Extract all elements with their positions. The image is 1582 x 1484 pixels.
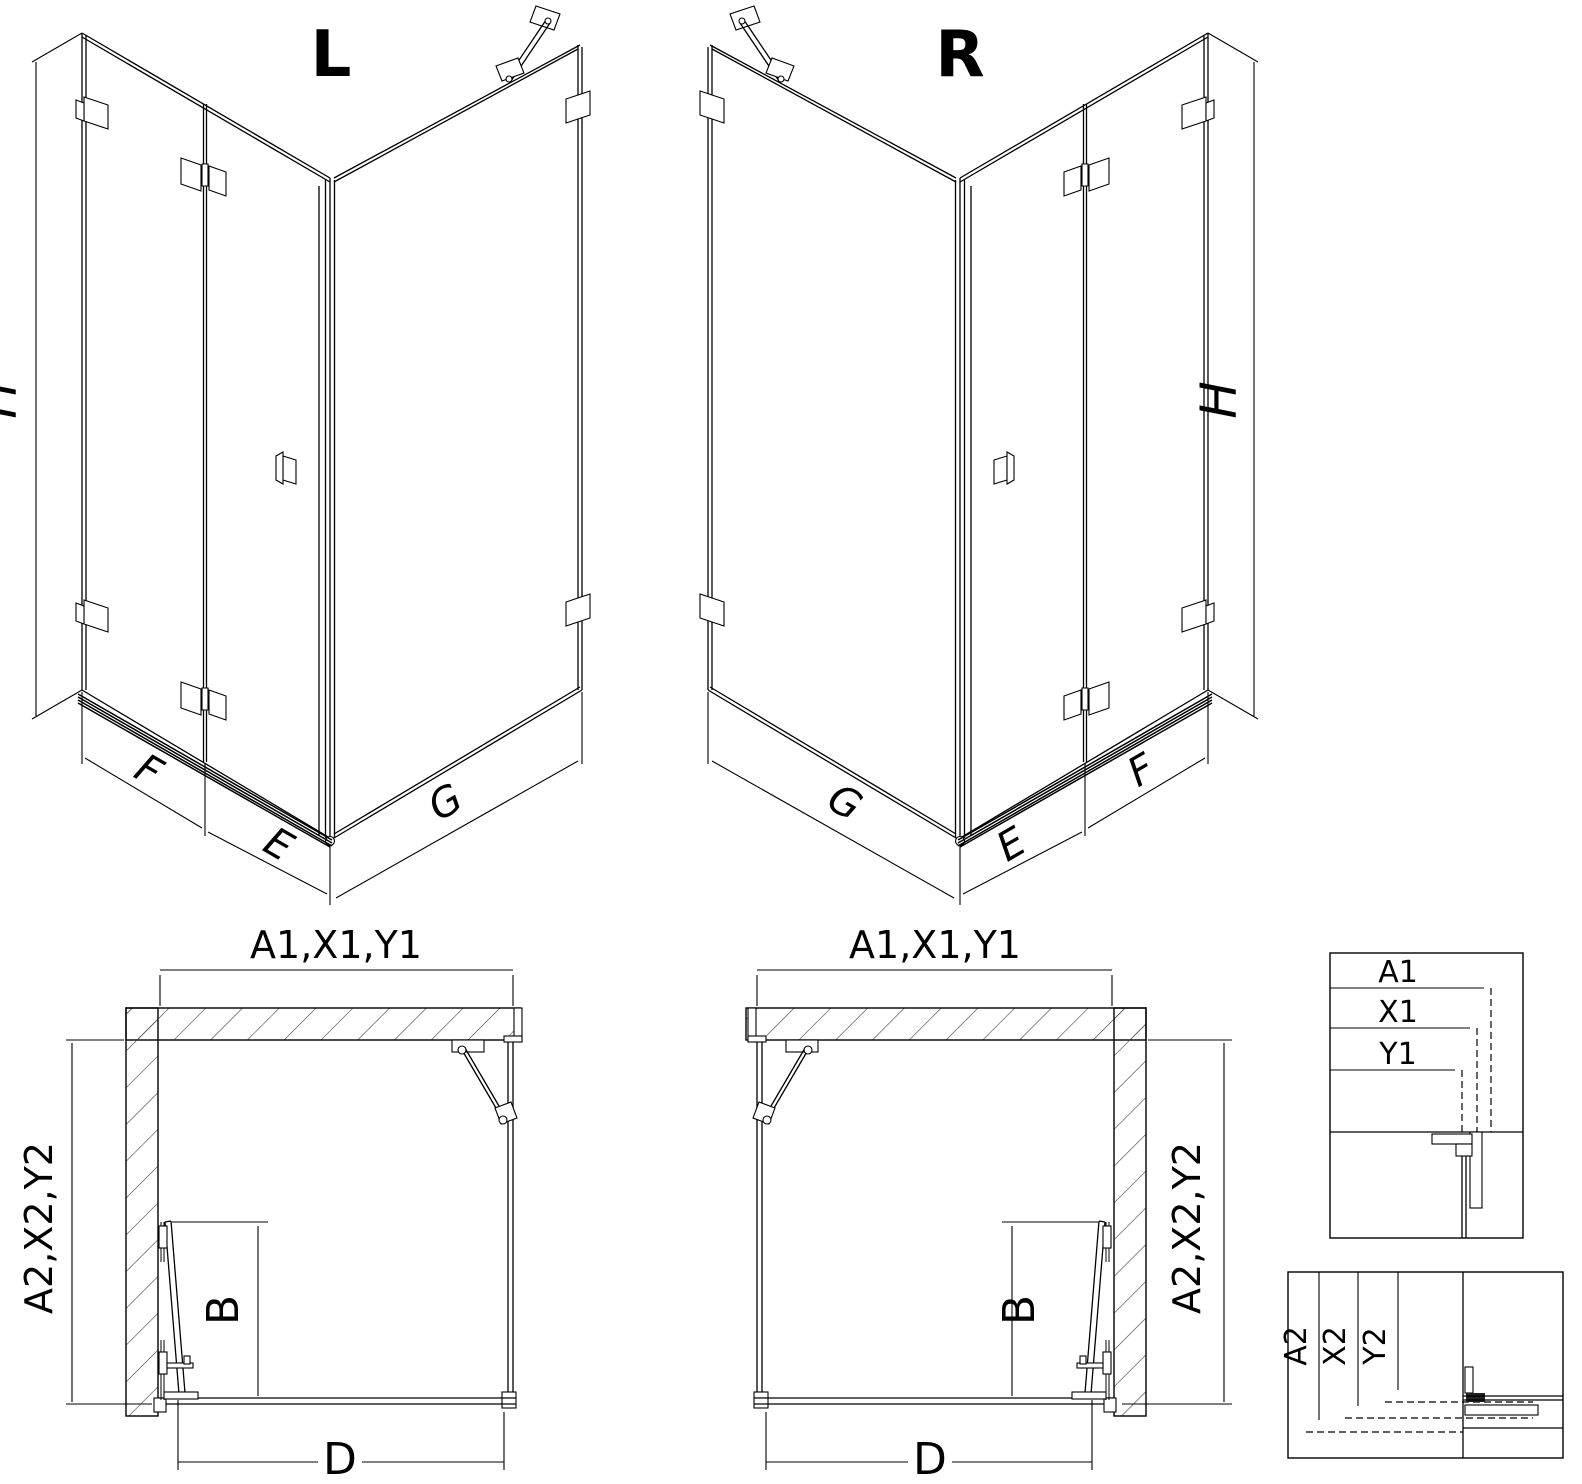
technical-drawing-canvas: H F E G L <box>0 0 1582 1484</box>
detail-label-y2: Y2 <box>1358 1327 1393 1365</box>
glass-panel-bottom <box>154 1398 516 1412</box>
wall-bracket-top-left <box>76 97 108 129</box>
glass-panel-right <box>502 1008 522 1408</box>
support-brace-left <box>496 6 560 82</box>
door-knob-right <box>994 452 1014 484</box>
dim-label-g-right: G <box>820 775 870 830</box>
height-dimension-left: H <box>0 33 82 719</box>
wall-bracket-bottom-right <box>1182 600 1214 632</box>
panel-bracket-bottom-left <box>700 594 724 626</box>
detail-label-x1: X1 <box>1378 995 1418 1030</box>
dim-label-e-left: E <box>256 819 302 872</box>
wall-top <box>746 1008 1146 1040</box>
detail-label-x2: X2 <box>1318 1326 1353 1366</box>
wall-profile-section-top <box>1330 1132 1523 1238</box>
support-brace-right <box>730 6 794 82</box>
base-dimensions-right: F E G <box>708 692 1208 905</box>
view-label-left: L <box>311 18 352 92</box>
panel-bracket-top-right <box>566 91 590 123</box>
support-brace-plan-left <box>452 1040 517 1124</box>
width-dimension-a1-right: A1,X1,Y1 <box>757 923 1112 1006</box>
wall-left <box>126 1008 158 1416</box>
entry-dimension-d-left: D <box>178 1400 504 1484</box>
entry-dimension-d-right: D <box>766 1400 1092 1484</box>
detail-inset-width: A1 X1 Y1 <box>1330 953 1523 1238</box>
width-dimension-a1-left: A1,X1,Y1 <box>160 923 513 1006</box>
shower-door-plan-right <box>1072 1221 1111 1400</box>
iso-view-left: H F E G L <box>0 6 590 905</box>
detail-inset-depth: A2 X2 Y2 <box>1279 1272 1563 1458</box>
wall-bracket-top-right <box>1182 97 1214 129</box>
dim-label-a1-left: A1,X1,Y1 <box>250 923 422 967</box>
glass-walls-right-version <box>708 33 1208 846</box>
dim-label-b-right: B <box>994 1295 1045 1325</box>
wall-top <box>126 1008 520 1040</box>
wall-profile-section-bottom <box>1463 1367 1563 1428</box>
panel-bracket-top-left <box>700 91 724 123</box>
plan-view-right: A1,X1,Y1 A2,X2,Y2 B D <box>746 923 1232 1484</box>
y1-arrow: Y1 <box>1330 1037 1462 1134</box>
dim-label-g-left: G <box>421 775 471 830</box>
dim-label-h-right: H <box>1190 381 1248 419</box>
dim-label-a1-right: A1,X1,Y1 <box>849 923 1021 967</box>
dim-label-e-right: E <box>989 818 1035 871</box>
dim-label-d-right: D <box>913 1434 947 1484</box>
wall-right <box>1114 1008 1146 1416</box>
door-width-dimension-b-left: B <box>172 1222 268 1396</box>
dim-label-a2-left: A2,X2,Y2 <box>17 1142 61 1314</box>
glass-panel-bottom <box>754 1398 1116 1412</box>
view-label-right: R <box>935 18 984 92</box>
door-width-dimension-b-right: B <box>994 1222 1098 1396</box>
wall-bracket-bottom-left <box>76 600 108 632</box>
dim-label-h-left: H <box>0 381 28 419</box>
detail-label-a2: A2 <box>1279 1326 1314 1366</box>
glass-walls-left-version <box>82 33 582 846</box>
detail-label-a1: A1 <box>1378 955 1418 990</box>
dim-label-d-left: D <box>323 1434 357 1484</box>
dim-label-f-right: F <box>1120 745 1164 797</box>
dim-label-b-left: B <box>198 1295 249 1325</box>
y2-arrow: Y2 <box>1358 1272 1533 1402</box>
shower-door-plan-left <box>159 1221 198 1400</box>
base-dimensions-left: F E G <box>82 692 582 905</box>
dim-label-f-left: F <box>127 745 171 797</box>
iso-view-right: H F E G R <box>700 6 1258 905</box>
plan-view-left: A1,X1,Y1 A2,X2,Y2 B D <box>17 923 522 1484</box>
door-knob-left <box>276 452 296 484</box>
panel-bracket-bottom-right <box>566 594 590 626</box>
detail-label-y1: Y1 <box>1378 1037 1416 1072</box>
glass-panel-left <box>748 1008 768 1408</box>
support-brace-plan-right <box>753 1040 818 1124</box>
dim-label-a2-right: A2,X2,Y2 <box>1165 1142 1209 1314</box>
